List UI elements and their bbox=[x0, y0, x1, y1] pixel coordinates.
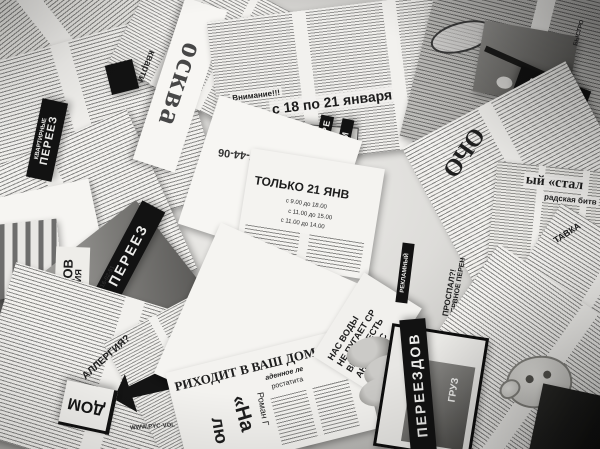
stal-headline-text: ый «стал bbox=[523, 172, 586, 194]
newspaper-collage-photo: осква кварти Внимание!!! с 18 по 21 янва… bbox=[0, 0, 600, 449]
lyu-text: лю bbox=[207, 415, 232, 445]
pereezdov-text: ПЕРЕЕЗДОВ bbox=[405, 332, 430, 438]
reklamny-text: РЕКЛАМНЫЙ bbox=[400, 253, 411, 293]
cup-highlight bbox=[496, 75, 514, 90]
dates-headline-text: с 18 по 21 января bbox=[269, 86, 395, 117]
reklamny-strip: РЕКЛАМНЫЙ bbox=[395, 242, 414, 303]
tolko-headline-text: ТОЛЬКО 21 ЯНВ bbox=[254, 173, 351, 202]
bitva-text: радская битв bbox=[542, 192, 599, 207]
dom-text: ДОМ bbox=[66, 393, 106, 418]
